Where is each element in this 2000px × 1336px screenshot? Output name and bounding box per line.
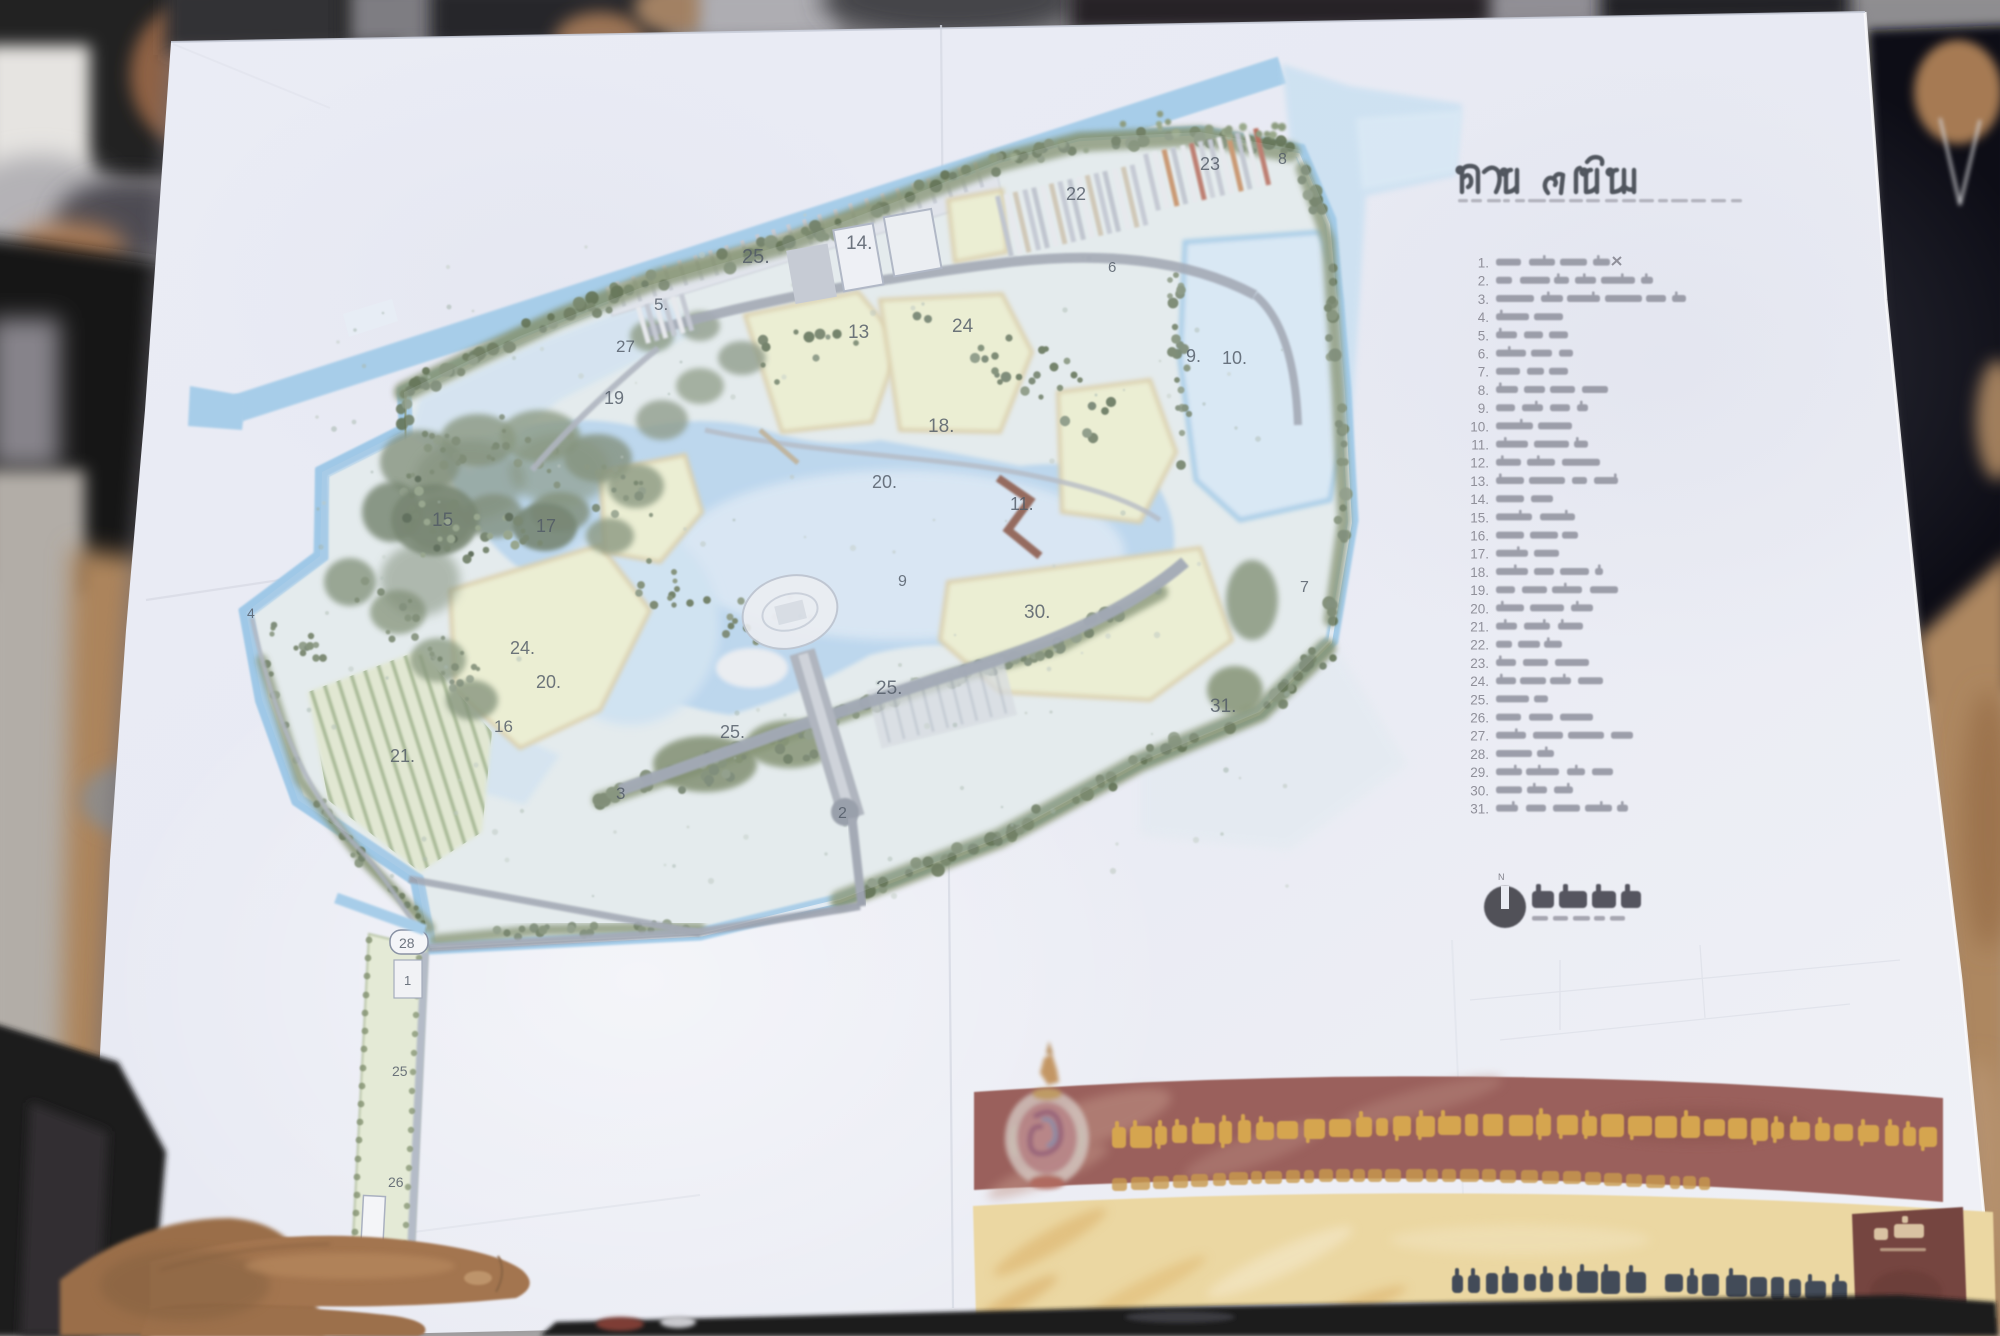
svg-text:13: 13	[848, 322, 869, 343]
svg-text:4: 4	[247, 605, 255, 621]
svg-text:8.: 8.	[1478, 383, 1489, 398]
svg-text:31.: 31.	[1470, 802, 1489, 817]
svg-text:10.: 10.	[1470, 419, 1489, 434]
svg-text:5.: 5.	[1478, 328, 1489, 343]
svg-text:28: 28	[399, 935, 415, 951]
svg-text:19: 19	[604, 388, 624, 408]
svg-text:27.: 27.	[1470, 729, 1489, 744]
svg-text:18.: 18.	[928, 416, 954, 437]
svg-text:15.: 15.	[1470, 510, 1489, 525]
svg-text:21.: 21.	[1470, 620, 1489, 635]
svg-text:1: 1	[404, 973, 411, 988]
svg-text:9: 9	[898, 573, 907, 590]
svg-text:7: 7	[1300, 579, 1309, 596]
svg-text:9.: 9.	[1478, 401, 1489, 416]
svg-text:23.: 23.	[1470, 656, 1489, 671]
svg-text:24.: 24.	[1470, 674, 1489, 689]
svg-text:13.: 13.	[1470, 474, 1489, 489]
svg-text:11.: 11.	[1471, 438, 1489, 453]
svg-text:26: 26	[388, 1174, 404, 1190]
svg-text:17.: 17.	[1470, 547, 1489, 562]
svg-text:25.: 25.	[742, 246, 770, 268]
svg-text:11.: 11.	[1010, 494, 1034, 514]
svg-text:16: 16	[494, 717, 513, 736]
svg-text:6.: 6.	[1478, 347, 1489, 362]
svg-text:30.: 30.	[1024, 602, 1050, 623]
svg-text:20.: 20.	[872, 472, 897, 492]
svg-text:25.: 25.	[876, 678, 902, 699]
svg-text:N: N	[1498, 872, 1505, 882]
svg-text:5.: 5.	[654, 295, 668, 314]
svg-text:20.: 20.	[536, 672, 561, 692]
svg-text:22: 22	[1066, 184, 1086, 204]
svg-text:8: 8	[1278, 151, 1287, 168]
svg-text:15: 15	[432, 510, 453, 531]
svg-text:14.: 14.	[1470, 492, 1489, 507]
svg-text:23: 23	[1200, 154, 1220, 174]
svg-text:9.: 9.	[1186, 346, 1201, 366]
svg-text:6: 6	[1108, 259, 1116, 276]
svg-text:21.: 21.	[390, 746, 415, 766]
svg-text:27: 27	[616, 337, 635, 356]
svg-text:24: 24	[952, 316, 974, 337]
svg-text:28.: 28.	[1470, 747, 1489, 762]
svg-text:4.: 4.	[1478, 310, 1489, 325]
svg-text:25.: 25.	[1470, 692, 1489, 707]
svg-text:20.: 20.	[1470, 601, 1489, 616]
svg-text:31.: 31.	[1210, 696, 1236, 717]
svg-text:24.: 24.	[510, 638, 535, 658]
svg-text:18.: 18.	[1470, 565, 1489, 580]
svg-text:3: 3	[616, 784, 625, 803]
svg-text:3.: 3.	[1478, 292, 1489, 307]
svg-text:19.: 19.	[1470, 583, 1489, 598]
svg-text:10.: 10.	[1222, 348, 1247, 368]
svg-text:16.: 16.	[1470, 529, 1489, 544]
svg-text:14.: 14.	[846, 233, 872, 254]
svg-text:17: 17	[536, 516, 556, 536]
svg-text:26.: 26.	[1470, 711, 1489, 726]
svg-text:2: 2	[838, 805, 847, 822]
svg-text:1.: 1.	[1478, 256, 1489, 271]
svg-text:29.: 29.	[1470, 765, 1489, 780]
svg-text:30.: 30.	[1470, 783, 1489, 798]
svg-text:2.: 2.	[1478, 274, 1489, 289]
svg-text:12.: 12.	[1470, 456, 1489, 471]
svg-text:7.: 7.	[1478, 365, 1489, 380]
svg-text:22.: 22.	[1470, 638, 1489, 653]
svg-text:25: 25	[392, 1063, 408, 1079]
svg-text:25.: 25.	[720, 722, 745, 742]
